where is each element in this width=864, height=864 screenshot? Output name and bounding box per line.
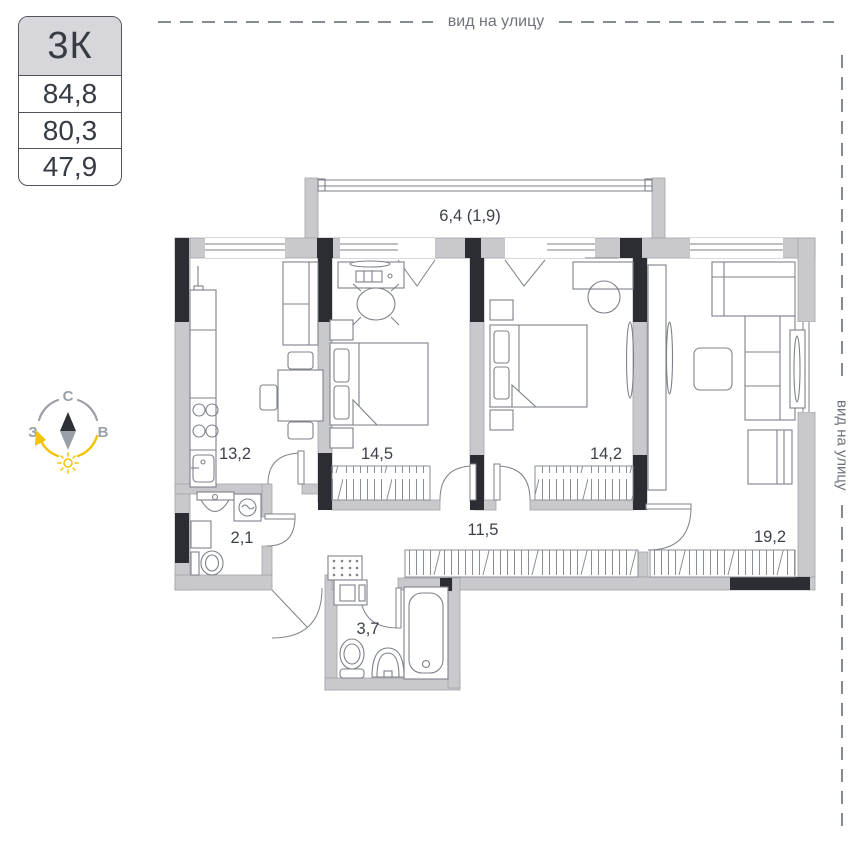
compass-north-label: С bbox=[63, 388, 74, 405]
room-label-bedroom2: 14,2 bbox=[590, 445, 622, 463]
area-reduced: 80,3 bbox=[19, 113, 121, 150]
street-view-top: вид на улицу bbox=[158, 13, 834, 31]
washing-machine bbox=[334, 580, 367, 605]
room-label-kitchen: 13,2 bbox=[219, 445, 251, 463]
kitchen-sink bbox=[191, 455, 214, 482]
balcony-glazing bbox=[318, 179, 652, 191]
dashed-line-right bbox=[559, 21, 834, 23]
room-label-bedroom1: 14,5 bbox=[361, 445, 393, 463]
living-room-furniture bbox=[648, 262, 805, 490]
area-total: 84,8 bbox=[19, 76, 121, 113]
balcony-wall-left bbox=[305, 178, 318, 240]
nightstand bbox=[490, 300, 513, 320]
bathtub bbox=[404, 587, 448, 679]
entrance-door bbox=[272, 588, 322, 638]
room-label-wc: 2,1 bbox=[231, 529, 254, 547]
desk bbox=[573, 258, 633, 289]
compass-needle bbox=[60, 412, 76, 450]
tv-console bbox=[648, 265, 673, 490]
wardrobes bbox=[332, 466, 795, 577]
bedroom1-window bbox=[340, 238, 398, 258]
floorplan-page: 3К 84,8 80,3 47,9 вид на улицу вид на ул… bbox=[0, 0, 864, 864]
bathroom-toilet bbox=[340, 639, 364, 678]
bedroom1-balcony-door-opening bbox=[398, 238, 435, 258]
room-label-living: 19,2 bbox=[754, 528, 786, 546]
bed bbox=[330, 343, 428, 425]
living-room-door bbox=[646, 504, 691, 550]
bedroom1-door bbox=[440, 464, 476, 500]
compass-east-label: В bbox=[98, 424, 109, 441]
bedroom1-furniture bbox=[330, 261, 428, 448]
vent-shaft bbox=[328, 556, 362, 580]
nightstand bbox=[330, 320, 353, 340]
dashed-line-top bbox=[841, 55, 843, 385]
bedroom2-balcony-door bbox=[505, 260, 545, 286]
tv bbox=[667, 322, 673, 394]
dashed-line-bottom bbox=[841, 505, 843, 835]
bedroom2-window bbox=[547, 238, 595, 258]
bedroom2-furniture bbox=[490, 258, 634, 430]
sun-path-arc-left bbox=[41, 441, 58, 456]
room-label-balcony: 6,4 (1,9) bbox=[439, 207, 500, 225]
bed bbox=[490, 325, 587, 407]
street-view-right-label: вид на улицу bbox=[834, 400, 851, 490]
wardrobe-corridor bbox=[405, 550, 638, 577]
nightstand bbox=[330, 428, 353, 448]
sun-path-arc-right bbox=[78, 436, 97, 456]
compass-arc-northeast bbox=[78, 400, 97, 420]
room-label-bathroom: 3,7 bbox=[357, 620, 380, 638]
room-label-corridor: 11,5 bbox=[468, 521, 499, 539]
wardrobe-bedroom1 bbox=[332, 466, 430, 500]
dining-table bbox=[260, 352, 323, 439]
radiator bbox=[790, 330, 805, 408]
compass-arc-northwest bbox=[39, 400, 58, 420]
street-view-right: вид на улицу bbox=[832, 55, 852, 835]
chair bbox=[288, 352, 313, 369]
armchair bbox=[748, 430, 792, 484]
office-chair bbox=[353, 284, 399, 325]
sun-icon bbox=[58, 453, 78, 473]
wc-sink bbox=[197, 492, 234, 512]
kitchen-door bbox=[268, 451, 304, 484]
radiator bbox=[627, 322, 634, 398]
kitchen-window bbox=[205, 238, 285, 258]
bedroom2-balcony-door-opening bbox=[505, 238, 547, 258]
cabinet bbox=[191, 521, 211, 548]
living-window-top bbox=[690, 238, 783, 258]
washing-machine bbox=[234, 494, 261, 521]
dashed-line-left bbox=[158, 21, 433, 23]
apartment-info-card: 3К 84,8 80,3 47,9 bbox=[18, 16, 122, 186]
bathroom-sink bbox=[372, 648, 404, 677]
corner-sofa bbox=[712, 262, 795, 420]
nightstand bbox=[490, 410, 513, 430]
wc-door bbox=[265, 514, 295, 546]
kitchen-sofa bbox=[283, 262, 318, 345]
wardrobe-living bbox=[650, 550, 795, 577]
area-living: 47,9 bbox=[19, 149, 121, 185]
wc-toilet bbox=[191, 551, 223, 575]
wardrobe-bedroom2 bbox=[535, 466, 633, 500]
apartment-type-badge: 3К bbox=[19, 17, 121, 76]
balcony-wall-right bbox=[652, 178, 665, 240]
floor-plan: 6,4 (1,9) 13,2 14,5 14,2 11,5 2,1 19,2 3… bbox=[0, 0, 864, 864]
sun-path-arrow bbox=[35, 430, 46, 446]
dressing-table bbox=[338, 261, 404, 288]
chair bbox=[260, 385, 277, 410]
coffee-table bbox=[694, 348, 732, 390]
bedroom2-door bbox=[494, 464, 530, 500]
street-view-top-label: вид на улицу bbox=[448, 13, 544, 31]
chair bbox=[288, 422, 313, 439]
compass: С З В bbox=[28, 388, 108, 473]
